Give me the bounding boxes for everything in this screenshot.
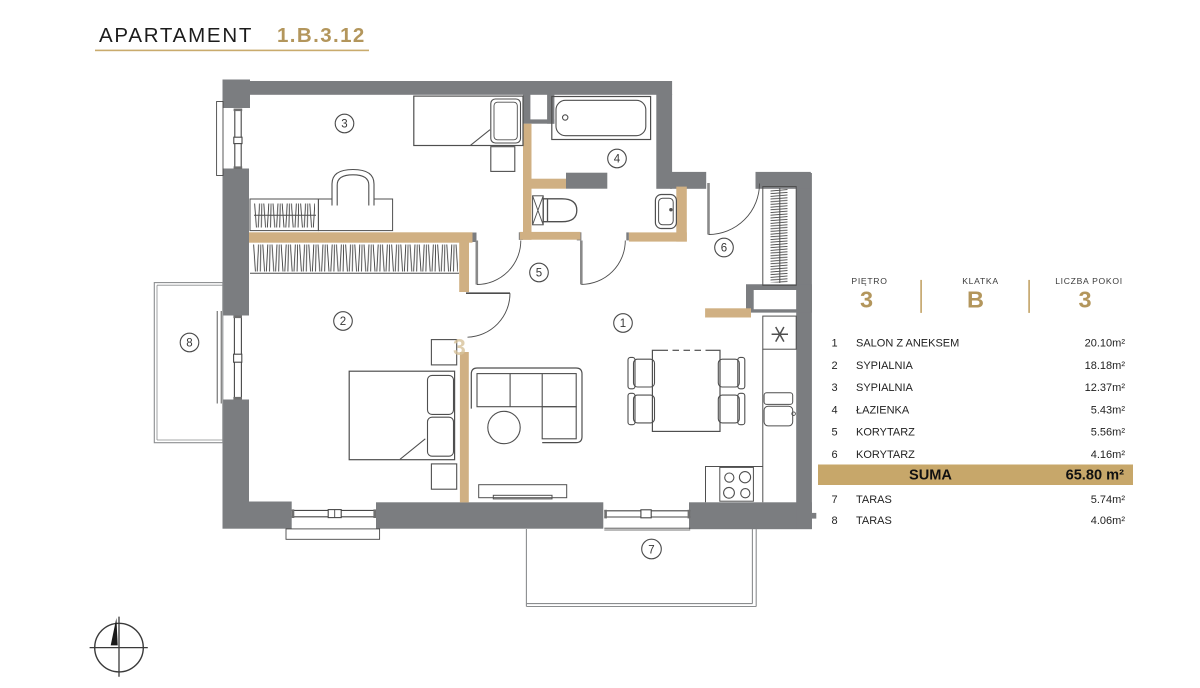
svg-text:4.06m²: 4.06m² [1091, 515, 1126, 527]
svg-text:3: 3 [453, 334, 466, 360]
svg-text:SUMA: SUMA [909, 468, 952, 484]
svg-text:B: B [967, 287, 984, 313]
svg-text:12.37m²: 12.37m² [1085, 382, 1126, 394]
svg-text:KLATKA: KLATKA [962, 276, 999, 286]
svg-text:65.80 m²: 65.80 m² [1066, 468, 1125, 484]
svg-text:4: 4 [832, 404, 838, 416]
svg-text:4.16m²: 4.16m² [1091, 449, 1126, 461]
svg-text:KORYTARZ: KORYTARZ [856, 427, 915, 439]
svg-text:PIĘTRO: PIĘTRO [851, 276, 887, 286]
svg-text:6: 6 [721, 243, 727, 255]
svg-text:4: 4 [614, 154, 621, 166]
svg-text:ŁAZIENKA: ŁAZIENKA [856, 404, 910, 416]
svg-text:3: 3 [860, 287, 873, 313]
svg-text:2: 2 [340, 316, 346, 328]
svg-text:SYPIALNIA: SYPIALNIA [856, 360, 914, 372]
svg-text:5.56m²: 5.56m² [1091, 427, 1126, 439]
svg-text:5.43m²: 5.43m² [1091, 404, 1126, 416]
svg-text:5.74m²: 5.74m² [1091, 494, 1126, 506]
svg-text:3: 3 [341, 119, 347, 131]
svg-text:KORYTARZ: KORYTARZ [856, 449, 915, 461]
svg-text:SYPIALNIA: SYPIALNIA [856, 382, 914, 394]
svg-text:1: 1 [620, 318, 626, 330]
svg-text:2: 2 [832, 360, 838, 372]
svg-text:APARTAMENT: APARTAMENT [99, 24, 253, 47]
svg-text:7: 7 [648, 544, 654, 556]
svg-text:5: 5 [832, 427, 838, 439]
svg-text:SALON Z ANEKSEM: SALON Z ANEKSEM [856, 338, 959, 350]
svg-text:LICZBA POKOI: LICZBA POKOI [1055, 276, 1123, 286]
svg-text:6: 6 [832, 449, 838, 461]
svg-text:1: 1 [832, 338, 838, 350]
svg-text:8: 8 [186, 338, 192, 350]
svg-text:TARAS: TARAS [856, 494, 892, 506]
svg-text:TARAS: TARAS [856, 515, 892, 527]
svg-text:18.18m²: 18.18m² [1085, 360, 1126, 372]
svg-text:7: 7 [832, 494, 838, 506]
svg-text:1.B.3.12: 1.B.3.12 [277, 24, 366, 47]
svg-text:8: 8 [832, 515, 838, 527]
svg-text:3: 3 [1078, 287, 1091, 313]
svg-text:20.10m²: 20.10m² [1085, 338, 1126, 350]
svg-text:5: 5 [536, 268, 542, 280]
svg-text:3: 3 [832, 382, 838, 394]
